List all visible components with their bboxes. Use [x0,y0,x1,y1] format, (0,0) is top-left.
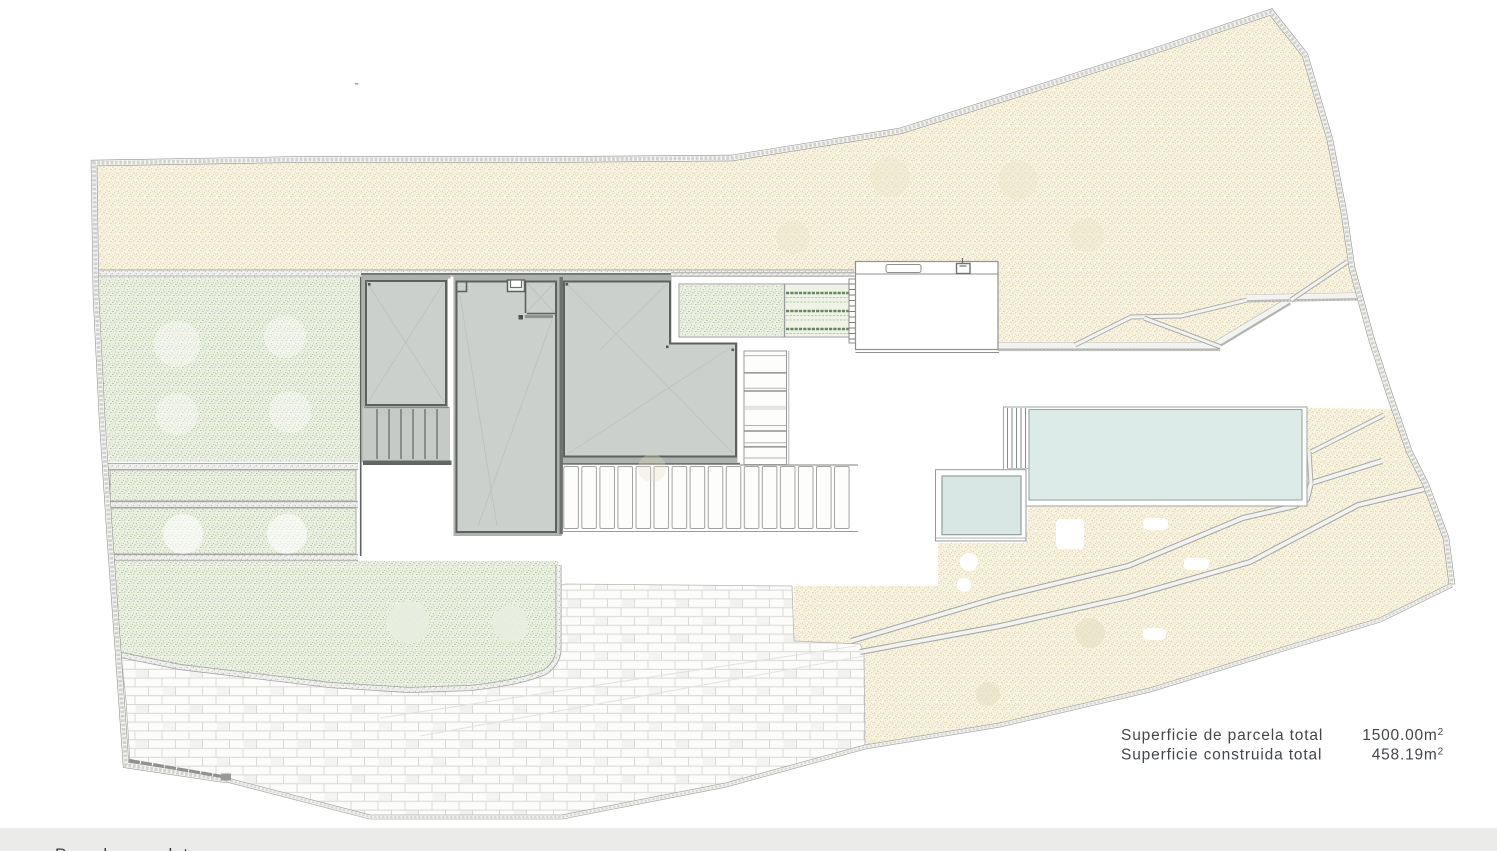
svg-text:1500.00m2: 1500.00m2 [1362,727,1444,744]
svg-text:Superficie construida total: Superficie construida total [1121,747,1322,764]
svg-text:Superficie de parcela total: Superficie de parcela total [1121,727,1323,744]
svg-text:Parcela completa: Parcela completa [55,845,199,851]
svg-text:458.19m2: 458.19m2 [1372,747,1444,764]
